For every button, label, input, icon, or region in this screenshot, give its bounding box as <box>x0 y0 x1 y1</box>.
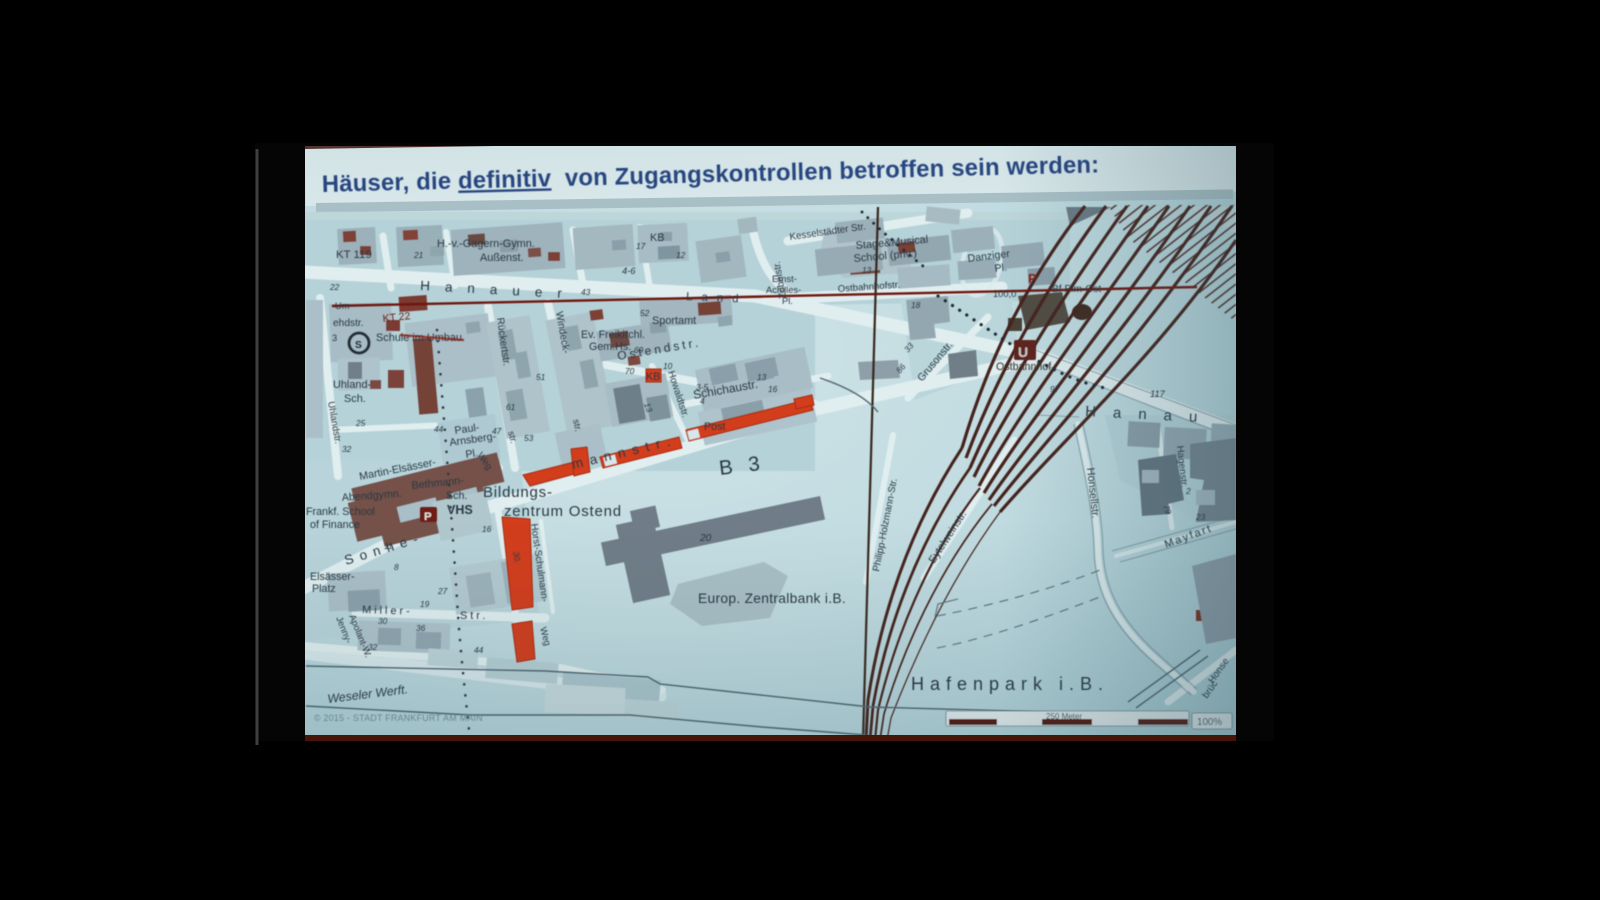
svg-text:Sch.: Sch. <box>344 393 366 405</box>
svg-text:13: 13 <box>757 372 767 382</box>
svg-text:4-6: 4-6 <box>622 266 636 276</box>
svg-text:61: 61 <box>506 402 515 412</box>
svg-text:70: 70 <box>625 366 635 376</box>
svg-text:43: 43 <box>581 287 591 297</box>
svg-text:3: 3 <box>332 333 337 343</box>
svg-text:zentrum Ostend: zentrum Ostend <box>504 503 622 520</box>
svg-text:Ernst-: Ernst- <box>772 274 797 284</box>
svg-text:Post: Post <box>704 421 725 433</box>
svg-text:32: 32 <box>342 444 352 454</box>
svg-text:Sportamt: Sportamt <box>652 315 696 327</box>
svg-text:10: 10 <box>663 361 673 371</box>
svg-text:Uhland-: Uhland- <box>333 379 372 391</box>
svg-text:13: 13 <box>862 265 872 275</box>
svg-text:KT 119: KT 119 <box>336 249 372 261</box>
svg-text:Ev. Freikirchl.: Ev. Freikirchl. <box>581 329 645 341</box>
svg-text:22: 22 <box>329 282 340 292</box>
svg-text:H.-v.-Gagern-Gymn.: H.-v.-Gagern-Gymn. <box>437 238 535 250</box>
svg-text:25: 25 <box>355 418 366 428</box>
svg-text:44: 44 <box>434 424 444 434</box>
svg-text:Frankf. School: Frankf. School <box>306 506 375 518</box>
svg-text:ehdstr.: ehdstr. <box>333 318 364 329</box>
svg-text:12: 12 <box>676 250 686 260</box>
svg-text:KB: KB <box>650 232 665 244</box>
svg-text:S: S <box>355 340 362 351</box>
svg-text:21: 21 <box>413 250 423 260</box>
svg-text:VHS: VHS <box>447 503 473 517</box>
svg-text:3-5: 3-5 <box>696 382 708 392</box>
svg-text:Pl.: Pl. <box>782 296 793 306</box>
svg-text:52: 52 <box>640 308 650 318</box>
svg-text:16: 16 <box>768 384 778 394</box>
svg-text:KB: KB <box>646 371 660 383</box>
svg-text:Achilles-: Achilles- <box>766 285 801 295</box>
svg-text:51: 51 <box>536 372 545 382</box>
svg-text:18: 18 <box>911 300 921 310</box>
svg-text:4: 4 <box>700 396 705 406</box>
svg-text:Bildungs-: Bildungs- <box>483 484 553 501</box>
svg-text:17: 17 <box>636 241 646 251</box>
svg-text:Um: Um <box>335 301 350 311</box>
svg-text:Sch.: Sch. <box>446 490 467 502</box>
svg-text:Außenst.: Außenst. <box>480 252 524 264</box>
svg-text:53: 53 <box>524 433 534 443</box>
